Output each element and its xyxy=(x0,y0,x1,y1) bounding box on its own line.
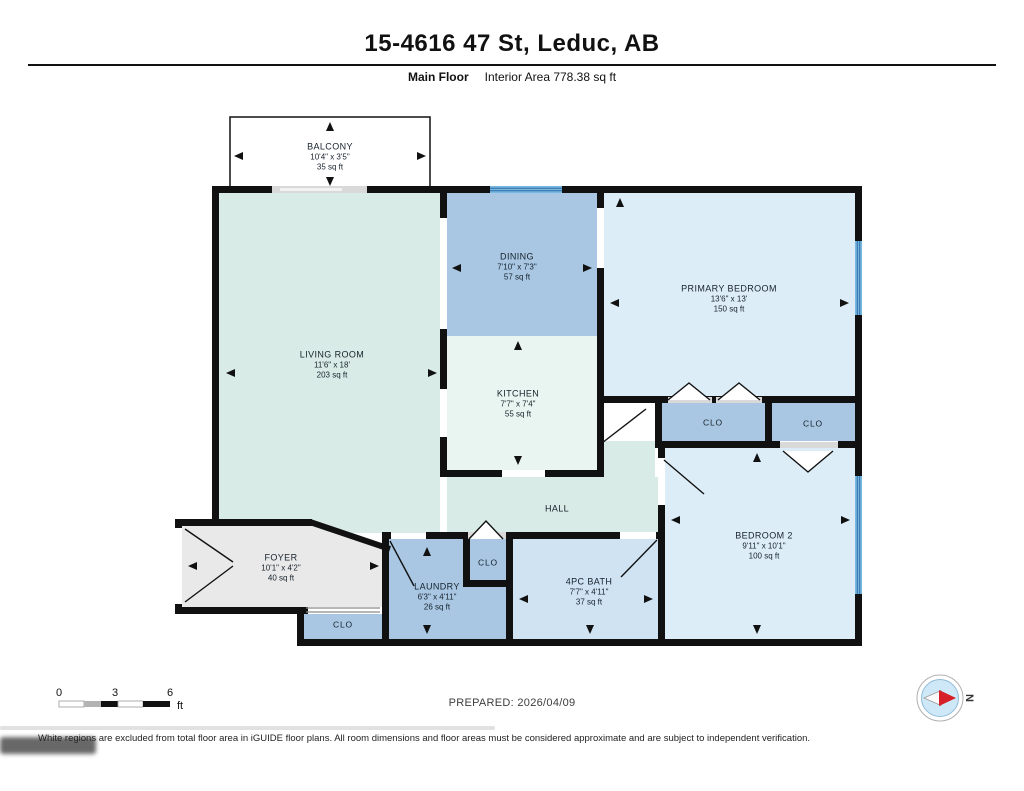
room-label-bedroom2: BEDROOM 2 9'11" x 10'1" 100 sq ft xyxy=(735,530,793,561)
room-label-closet-hall: CLO xyxy=(478,558,498,569)
room-label-hall: HALL xyxy=(545,503,569,514)
room-label-laundry: LAUNDRY 6'3" x 4'11" 26 sq ft xyxy=(414,581,460,612)
disclaimer-text: White regions are excluded from total fl… xyxy=(38,733,810,744)
room-label-closet2: CLO xyxy=(803,419,823,430)
room-label-closet-foyer: CLO xyxy=(333,620,353,631)
bedroom2-window xyxy=(855,476,862,594)
room-label-kitchen: KITCHEN 7'7" x 7'4" 55 sq ft xyxy=(497,388,539,419)
room-label-bath: 4PC BATH 7'7" x 4'11" 37 sq ft xyxy=(566,576,613,607)
room-label-foyer: FOYER 10'1" x 4'2" 40 sq ft xyxy=(261,552,300,583)
room-label-living: LIVING ROOM 11'6" x 18' 203 sq ft xyxy=(300,349,364,380)
closet2-door-threshold xyxy=(780,442,838,448)
prepared-date: PREPARED: 2026/04/09 xyxy=(0,697,1024,709)
floor-plan-page: 15-4616 47 St, Leduc, AB Main Floor Inte… xyxy=(0,0,1024,791)
hall-fill-2 xyxy=(604,441,655,477)
room-label-primary-bedroom: PRIMARY BEDROOM 13'6" x 13' 150 sq ft xyxy=(681,283,777,314)
room-label-dining: DINING 7'10" x 7'3" 57 sq ft xyxy=(497,251,536,282)
room-label-balcony: BALCONY 10'4" x 3'5" 35 sq ft xyxy=(307,141,353,172)
smudge-artifact-line xyxy=(0,726,495,730)
room-label-closet1: CLO xyxy=(703,418,723,429)
primary-window xyxy=(855,241,862,315)
dining-window xyxy=(490,186,562,193)
primary-door xyxy=(602,409,646,443)
